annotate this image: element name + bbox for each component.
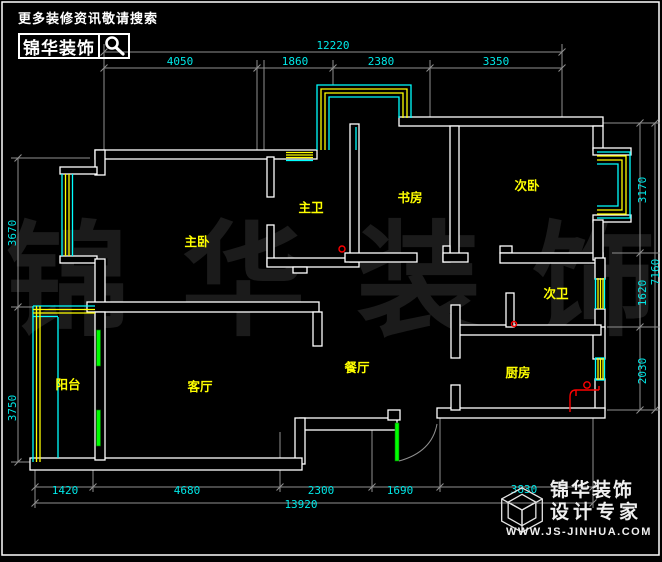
search-icon — [102, 34, 126, 58]
dim-bottom-overall: 13920 — [284, 498, 317, 511]
windows-cyan — [33, 85, 630, 462]
floorplan-drawing: 12220 4050 1860 2380 3350 3670 3750 3170… — [0, 0, 662, 562]
brand-text: 锦华装饰 — [23, 34, 95, 59]
doors — [97, 330, 400, 461]
dim-right-seg-1: 3170 — [636, 177, 649, 204]
dimension-lines — [11, 44, 660, 508]
dim-bottom-seg-2: 4680 — [174, 484, 201, 497]
dim-bottom-seg-1: 1420 — [52, 484, 79, 497]
floorplan-canvas: 锦 华 装 饰 — [0, 0, 662, 562]
room-label-kitchen: 厨房 — [505, 365, 530, 380]
footer-subtitle: 设计专家 — [550, 502, 658, 524]
footer-website: WWW.JS-JINHUA.COM — [506, 526, 652, 538]
brand-box: 锦华装饰 — [18, 33, 100, 59]
dim-top-seg-4: 3350 — [483, 55, 510, 68]
dim-bottom-seg-3: 2300 — [308, 484, 335, 497]
dim-right-seg-2: 1620 — [636, 280, 649, 307]
room-label-living-room: 客厅 — [186, 379, 213, 394]
room-label-study: 书房 — [397, 190, 422, 205]
dim-left-seg-2: 3750 — [6, 395, 19, 422]
room-label-balcony: 阳台 — [55, 377, 80, 392]
dim-top-seg-2: 1860 — [282, 55, 309, 68]
room-label-master-bath: 主卫 — [298, 200, 324, 215]
room-label-master-bedroom: 主卧 — [184, 234, 210, 249]
dim-bottom-seg-4: 1690 — [387, 484, 414, 497]
dim-top-seg-1: 4050 — [167, 55, 194, 68]
dim-right-seg-3: 2030 — [636, 358, 649, 385]
room-label-second-bath: 次卫 — [543, 286, 569, 301]
search-banner: 更多装修资讯敬请搜索 锦华装饰 — [18, 8, 158, 59]
footer-logo: 锦华装饰 设计专家 WWW.JS-JINHUA.COM — [498, 480, 658, 524]
dim-top-seg-3: 2380 — [368, 55, 395, 68]
room-label-second-bedroom: 次卧 — [514, 178, 540, 193]
footer-brand: 锦华装饰 — [550, 480, 658, 502]
dim-left-seg-1: 3670 — [6, 220, 19, 247]
dim-right-overall: 7160 — [649, 259, 662, 286]
walls — [30, 117, 631, 470]
search-box — [100, 33, 130, 59]
door-swing-arc — [399, 424, 437, 461]
dim-top-overall: 12220 — [316, 39, 349, 52]
banner-tagline: 更多装修资讯敬请搜索 — [18, 8, 158, 27]
room-label-dining-room: 餐厅 — [343, 360, 370, 375]
